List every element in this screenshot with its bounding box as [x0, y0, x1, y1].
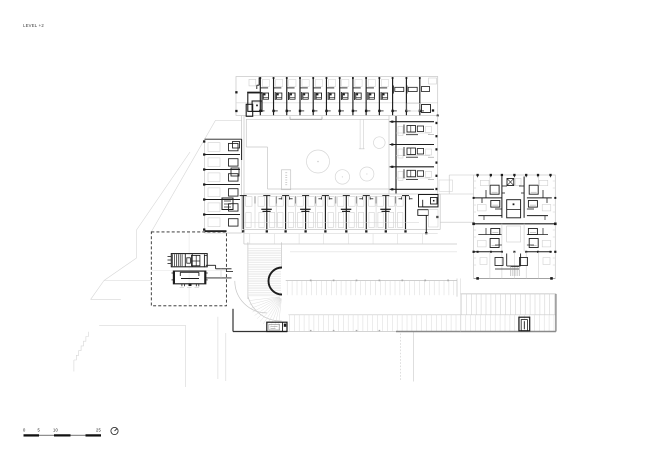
svg-text:LEVEL +2: LEVEL +2 — [23, 23, 44, 28]
svg-text:10: 10 — [53, 428, 58, 433]
svg-text:25: 25 — [96, 428, 101, 433]
